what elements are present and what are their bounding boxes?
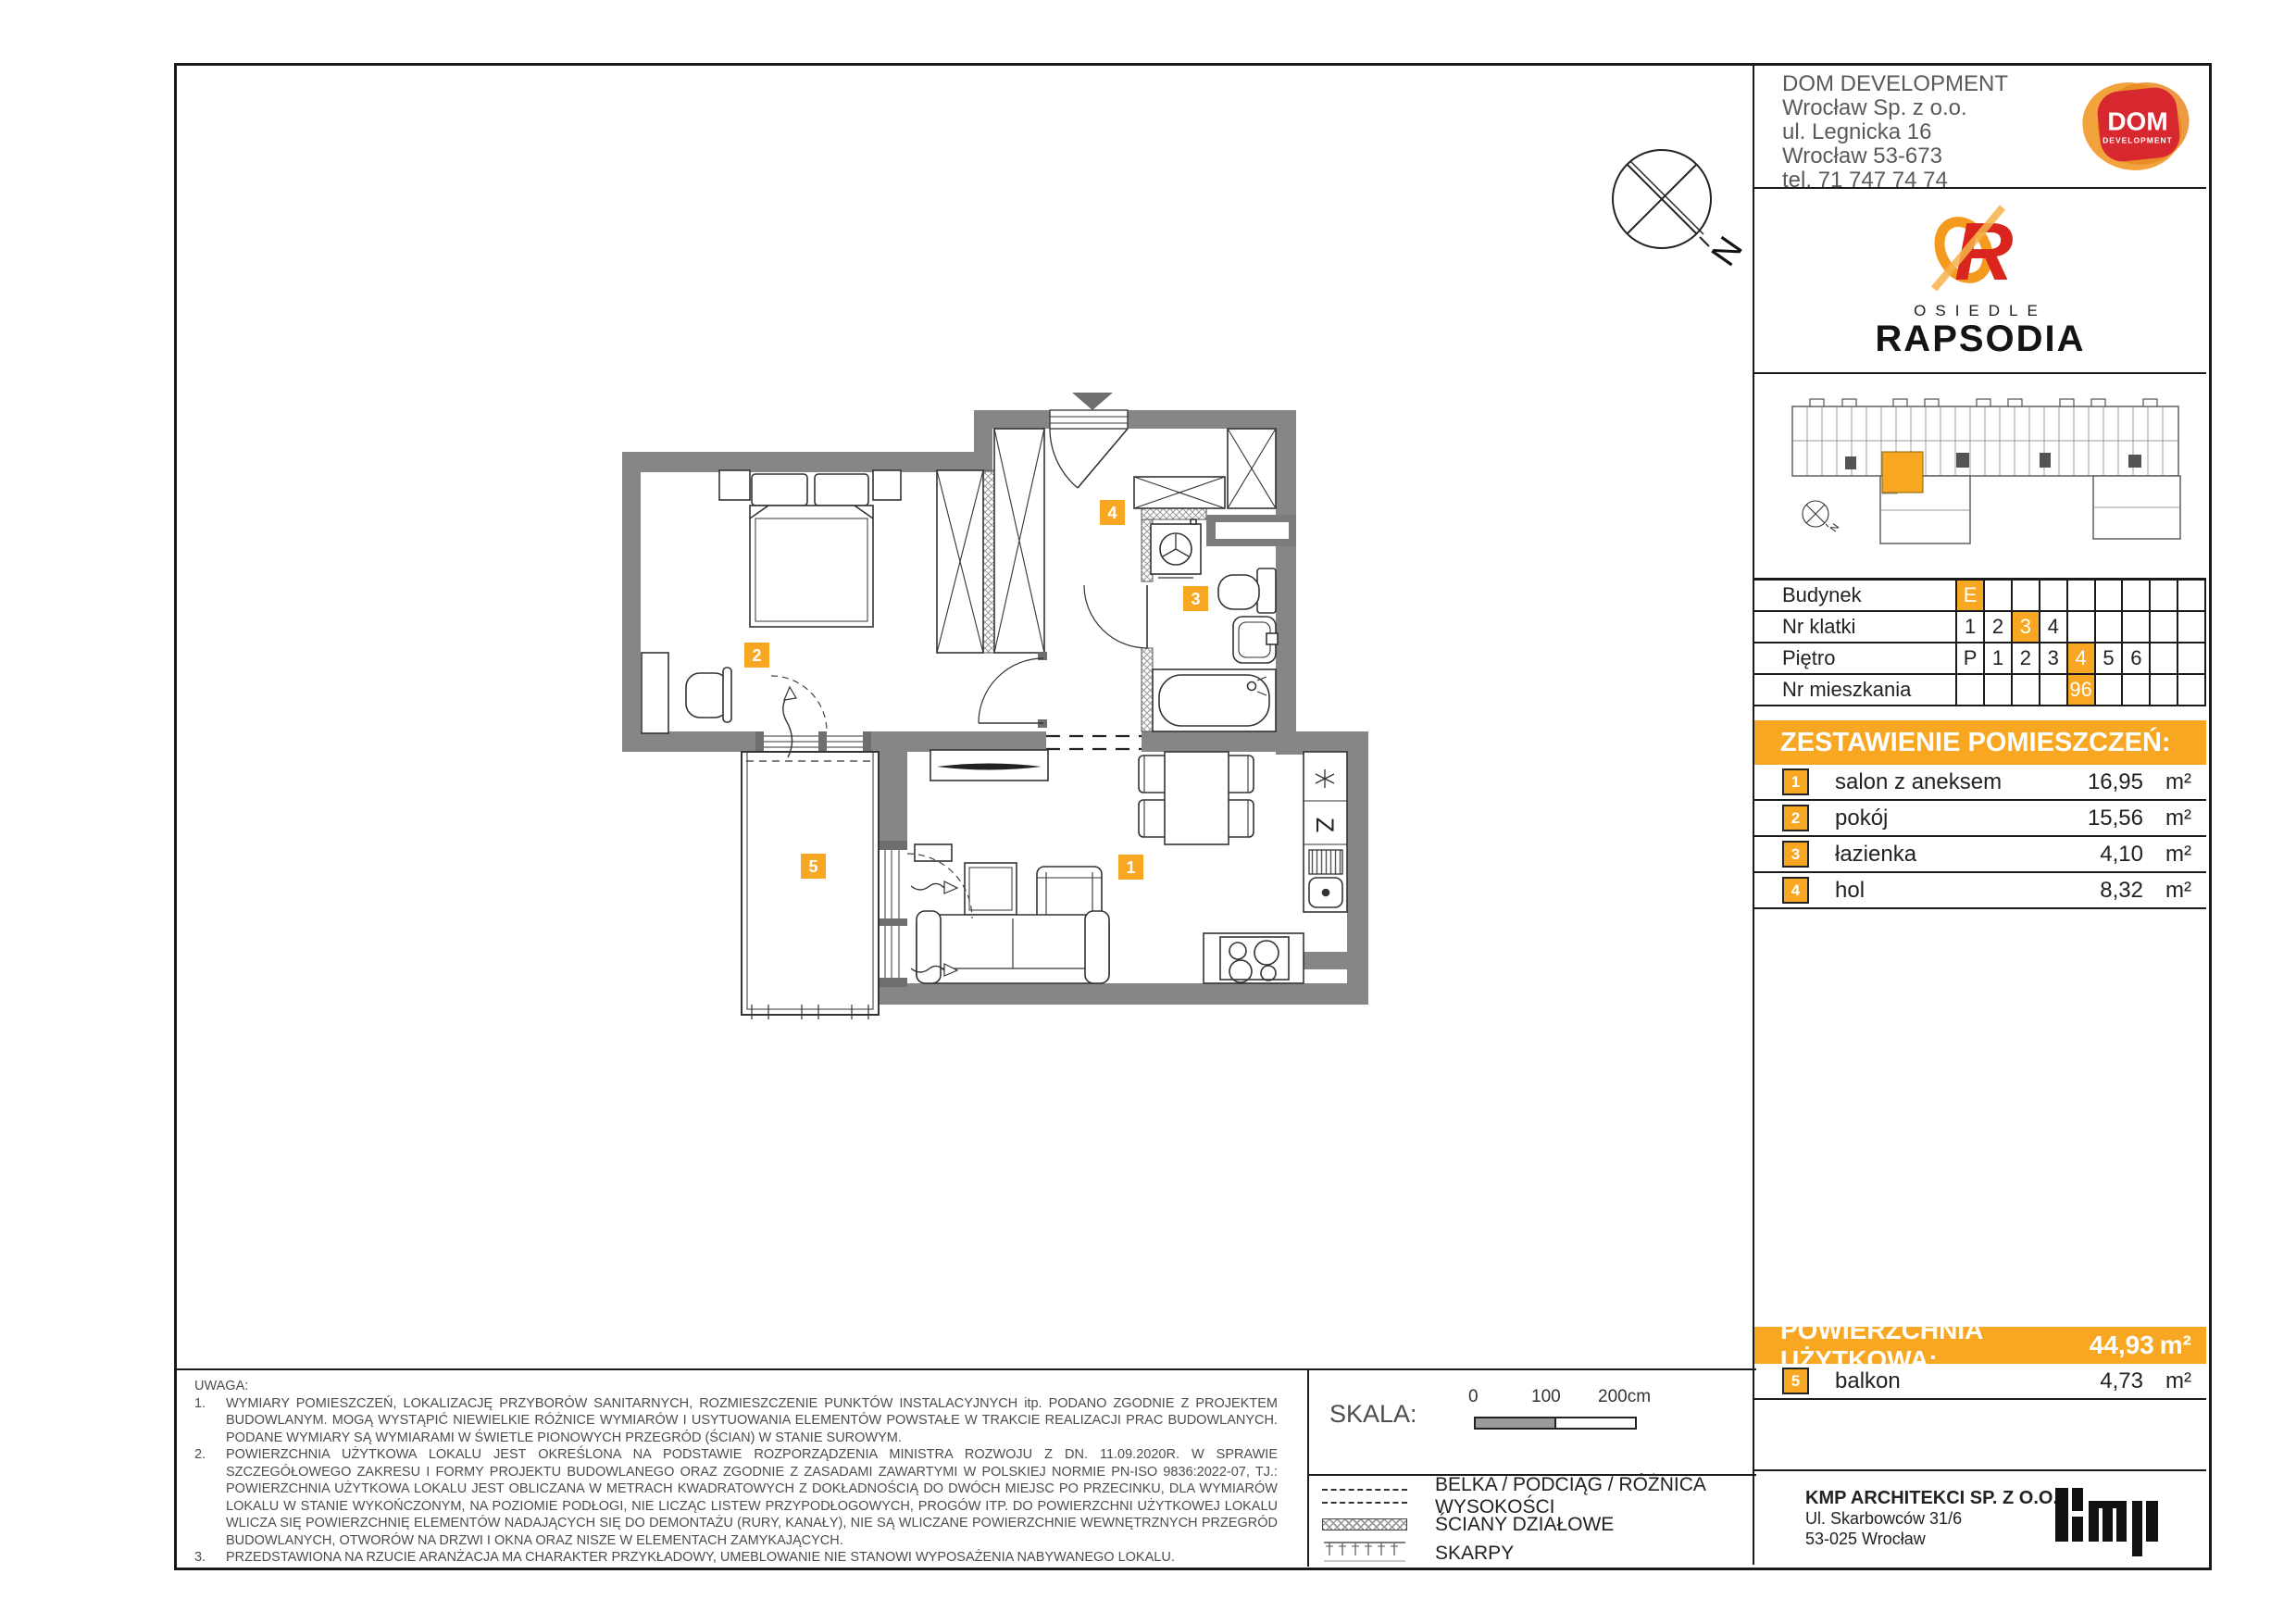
unit-table-cell <box>2178 643 2206 673</box>
bathroom-door <box>1084 585 1147 648</box>
unit-table-cell: 6 <box>2123 643 2151 673</box>
total-unit: m² <box>2160 1330 2206 1360</box>
company-line: ul. Legnicka 16 <box>1782 120 2008 144</box>
unit-table-cell <box>2123 612 2151 642</box>
unit-table-cell: 4 <box>2040 612 2068 642</box>
legend-row: BELKA / PODCIĄG / RÓŻNICA WYSOKOŚCI <box>1322 1481 1748 1510</box>
siteplan-unit-highlight <box>1882 452 1923 493</box>
unit-table-cell: 96 <box>2068 675 2096 705</box>
unit-table-row: BudynekE <box>1754 579 2206 612</box>
unit-table-cell: 3 <box>2040 643 2068 673</box>
pillow <box>815 474 868 506</box>
compass-label: N <box>1704 230 1751 273</box>
unit-table-cell <box>2178 675 2206 705</box>
room-area: 4,10 <box>2060 842 2143 868</box>
kmp-logo <box>2055 1484 2166 1558</box>
room-row: 2pokój15,56m² <box>1754 801 2206 837</box>
chair-back <box>723 668 731 722</box>
bedroom-furniture <box>642 470 901 733</box>
company-name: DOM DEVELOPMENT <box>1782 72 2008 96</box>
unit-table-cell <box>2178 612 2206 642</box>
partition-symbol-icon <box>1322 1518 1407 1530</box>
beam-line <box>1046 736 1142 749</box>
unit-table-cell <box>2151 675 2178 705</box>
cooktop <box>1220 937 1289 980</box>
nightstand <box>719 470 750 500</box>
balcony-row: 5 balkon 4,73 m² <box>1754 1364 2206 1400</box>
room-badge: 3 <box>1782 841 1809 868</box>
toilet-tank <box>1257 568 1276 613</box>
room-badge: 4 <box>1782 877 1809 904</box>
unit-table-cell <box>2040 675 2068 705</box>
dom-logo-subtitle: DEVELOPMENT <box>2103 136 2173 145</box>
floor-plan: N <box>174 63 1753 1368</box>
partition-symbol <box>1322 1518 1407 1530</box>
siteplan: N <box>1754 375 2206 576</box>
rooms-header: ZESTAWIENIE POMIESZCZEŃ: <box>1754 720 2206 765</box>
siteplan-compass-icon <box>1803 501 1828 527</box>
slope-symbol-icon <box>1322 1539 1407 1568</box>
kitchen-drainer <box>1309 850 1342 874</box>
bedroom-door <box>979 652 1047 728</box>
total-value: 44,93 <box>2090 1330 2160 1360</box>
rooms-list: 1salon z aneksem16,95m²2pokój15,56m²3łaz… <box>1754 765 2206 909</box>
room-row: 3łazienka4,10m² <box>1754 837 2206 873</box>
beam-symbol <box>1322 1489 1407 1504</box>
room-area: 15,56 <box>2060 806 2143 831</box>
legend-box: SKALA: 0 100 200cm BELKA / PODCIĄG / RÓŻ… <box>1307 1368 1756 1567</box>
note-item: 3.PRZEDSTAWIONA NA RZUCIE ARANŻACJA MA C… <box>194 1549 1278 1567</box>
pillow <box>752 474 807 506</box>
room-row: 1salon z aneksem16,95m² <box>1754 765 2206 801</box>
room-unit: m² <box>2143 769 2206 795</box>
unit-table-cell <box>1957 675 1985 705</box>
siteplan-compass-label: N <box>1828 522 1841 534</box>
balcony-badge: 5 <box>1782 1368 1809 1394</box>
badge-bathroom: 3 <box>1191 590 1200 608</box>
badge-living: 1 <box>1126 858 1135 877</box>
architect-box: KMP ARCHITEKCI SP. Z O.O. Ul. Skarbowców… <box>1754 1471 2206 1565</box>
company-box: DOM DEVELOPMENT Wrocław Sp. z o.o. ul. L… <box>1754 65 2206 189</box>
unit-table-cell: 1 <box>1985 643 2013 673</box>
bed <box>750 506 873 627</box>
note-text: POWIERZCHNIA UŻYTKOWA LOKALU JEST OKREŚL… <box>226 1446 1278 1549</box>
sofa-arm <box>1085 911 1109 983</box>
unit-table-cell <box>2123 581 2151 610</box>
unit-table-label: Nr klatki <box>1754 612 1957 642</box>
badge-hall: 4 <box>1107 504 1117 522</box>
entry-arrow-icon <box>1072 393 1113 410</box>
unit-table-cell <box>2096 612 2124 642</box>
room-unit: m² <box>2143 842 2206 868</box>
unit-table-cell <box>1985 581 2013 610</box>
rapsodia-monogram: R <box>1906 204 2054 296</box>
architect-line: Ul. Skarbowców 31/6 <box>1805 1508 2058 1529</box>
dom-logo: DOM DEVELOPMENT <box>2078 70 2197 181</box>
slope-symbol <box>1322 1539 1407 1563</box>
company-line: Wrocław Sp. z o.o. <box>1782 96 2008 120</box>
scale-tick: 200cm <box>1598 1387 1651 1407</box>
coffee-table <box>965 863 1017 915</box>
bathroom-fixtures <box>1151 519 1278 731</box>
bath-niche <box>1206 515 1296 546</box>
notes-title: UWAGA: <box>194 1378 1278 1395</box>
unit-table-row: PiętroP123456 <box>1754 643 2206 675</box>
architect-name: KMP ARCHITEKCI SP. Z O.O. <box>1805 1488 2058 1508</box>
dining-table <box>1165 752 1229 844</box>
balcony <box>742 752 879 1019</box>
compass-icon <box>1613 150 1711 248</box>
estate-kicker: OSIEDLE <box>1754 302 2206 320</box>
unit-table-label: Nr mieszkania <box>1754 675 1957 705</box>
note-number: 3. <box>194 1549 226 1567</box>
unit-table-cell: 3 <box>2013 612 2040 642</box>
unit-table-cell: 2 <box>1985 612 2013 642</box>
desk <box>642 653 668 733</box>
badge-bedroom: 2 <box>752 646 761 665</box>
notes-list: 1.WYMIARY POMIESZCZEŃ, LOKALIZACJĘ PRZYB… <box>194 1395 1278 1567</box>
architect-line: 53-025 Wrocław <box>1805 1529 2058 1549</box>
unit-table-cell: E <box>1957 581 1985 610</box>
balcony-name: balkon <box>1835 1368 2060 1394</box>
balcony-area: 4,73 <box>2060 1368 2143 1394</box>
room-name: salon z aneksem <box>1835 769 2060 795</box>
scale-tick: 100 <box>1531 1387 1561 1407</box>
unit-table-label: Budynek <box>1754 581 1957 610</box>
legend-label: BELKA / PODCIĄG / RÓŻNICA WYSOKOŚCI <box>1435 1474 1748 1518</box>
unit-table-cell: 1 <box>1957 612 1985 642</box>
room-area: 8,32 <box>2060 878 2143 904</box>
entry-door <box>1050 393 1128 488</box>
room-name: łazienka <box>1835 842 2060 868</box>
room-unit: m² <box>2143 878 2206 904</box>
total-bar: POWIERZCHNIA UŻYTKOWA: 44,93 m² <box>1754 1327 2206 1364</box>
chair <box>686 673 729 718</box>
unit-table-row: Nr mieszkania96 <box>1754 675 2206 706</box>
unit-table-cell: P <box>1957 643 1985 673</box>
unit-table-cell <box>2068 612 2096 642</box>
unit-table-cell <box>2123 675 2151 705</box>
unit-table-row: Nr klatki1234 <box>1754 612 2206 643</box>
dom-logo-title: DOM <box>2107 107 2167 136</box>
legend-label: ŚCIANY DZIAŁOWE <box>1435 1514 1614 1536</box>
unit-table-cell <box>1985 675 2013 705</box>
notes-box: UWAGA: 1.WYMIARY POMIESZCZEŃ, LOKALIZACJ… <box>174 1368 1307 1567</box>
siteplan-box: N <box>1754 375 2206 580</box>
room-badge: 2 <box>1782 805 1809 831</box>
beam-symbol-icon <box>1322 1489 1407 1504</box>
legend-row: SKARPY <box>1322 1539 1748 1568</box>
unit-table-cell <box>2151 612 2178 642</box>
room-area: 16,95 <box>2060 769 2143 795</box>
note-number: 2. <box>194 1446 226 1549</box>
unit-table-cell <box>2151 581 2178 610</box>
unit-table-cell <box>2013 675 2040 705</box>
estate-name: RAPSODIA <box>1754 319 2206 360</box>
unit-table-cell <box>2151 643 2178 673</box>
unit-table-cell <box>2068 581 2096 610</box>
unit-table-cell <box>2096 581 2124 610</box>
note-text: PRZEDSTAWIONA NA RZUCIE ARANŻACJA MA CHA… <box>226 1549 1278 1567</box>
unit-table-cell <box>2040 581 2068 610</box>
room-name: pokój <box>1835 806 2060 831</box>
room-badge: 1 <box>1782 768 1809 795</box>
scale-tick: 0 <box>1468 1387 1479 1407</box>
note-item: 2.POWIERZCHNIA UŻYTKOWA LOKALU JEST OKRE… <box>194 1446 1278 1549</box>
kitchen-letter: Z <box>1311 818 1339 833</box>
balcony-unit: m² <box>2143 1368 2206 1394</box>
legend-list: BELKA / PODCIĄG / RÓŻNICA WYSOKOŚCIŚCIAN… <box>1322 1481 1748 1568</box>
scale-label: SKALA: <box>1329 1400 1417 1429</box>
unit-table-cell <box>2013 581 2040 610</box>
estate-box: R OSIEDLE RAPSODIA <box>1754 189 2206 374</box>
note-text: WYMIARY POMIESZCZEŃ, LOKALIZACJĘ PRZYBOR… <box>226 1395 1278 1447</box>
unit-table-cell <box>2178 581 2206 610</box>
note-number: 1. <box>194 1395 226 1447</box>
badge-balcony: 5 <box>808 857 817 876</box>
room-unit: m² <box>2143 806 2206 831</box>
bathtub <box>1153 669 1276 731</box>
note-item: 1.WYMIARY POMIESZCZEŃ, LOKALIZACJĘ PRZYB… <box>194 1395 1278 1447</box>
bedroom-window <box>755 676 871 757</box>
room-name: hol <box>1835 878 2060 904</box>
room-row: 4hol8,32m² <box>1754 873 2206 909</box>
unit-table-cell: 4 <box>2068 643 2096 673</box>
unit-table-cell: 5 <box>2096 643 2124 673</box>
toilet-bowl <box>1218 575 1259 609</box>
legend-label: SKARPY <box>1435 1543 1514 1565</box>
unit-table: BudynekENr klatki1234PiętroP123456Nr mie… <box>1754 579 2206 706</box>
faucet <box>1267 633 1278 644</box>
company-line: Wrocław 53-673 <box>1782 144 2008 169</box>
unit-table-cell <box>2096 675 2124 705</box>
nightstand <box>873 470 901 500</box>
unit-table-cell: 2 <box>2013 643 2040 673</box>
unit-table-label: Piętro <box>1754 643 1957 673</box>
scale-bar <box>1474 1417 1637 1430</box>
